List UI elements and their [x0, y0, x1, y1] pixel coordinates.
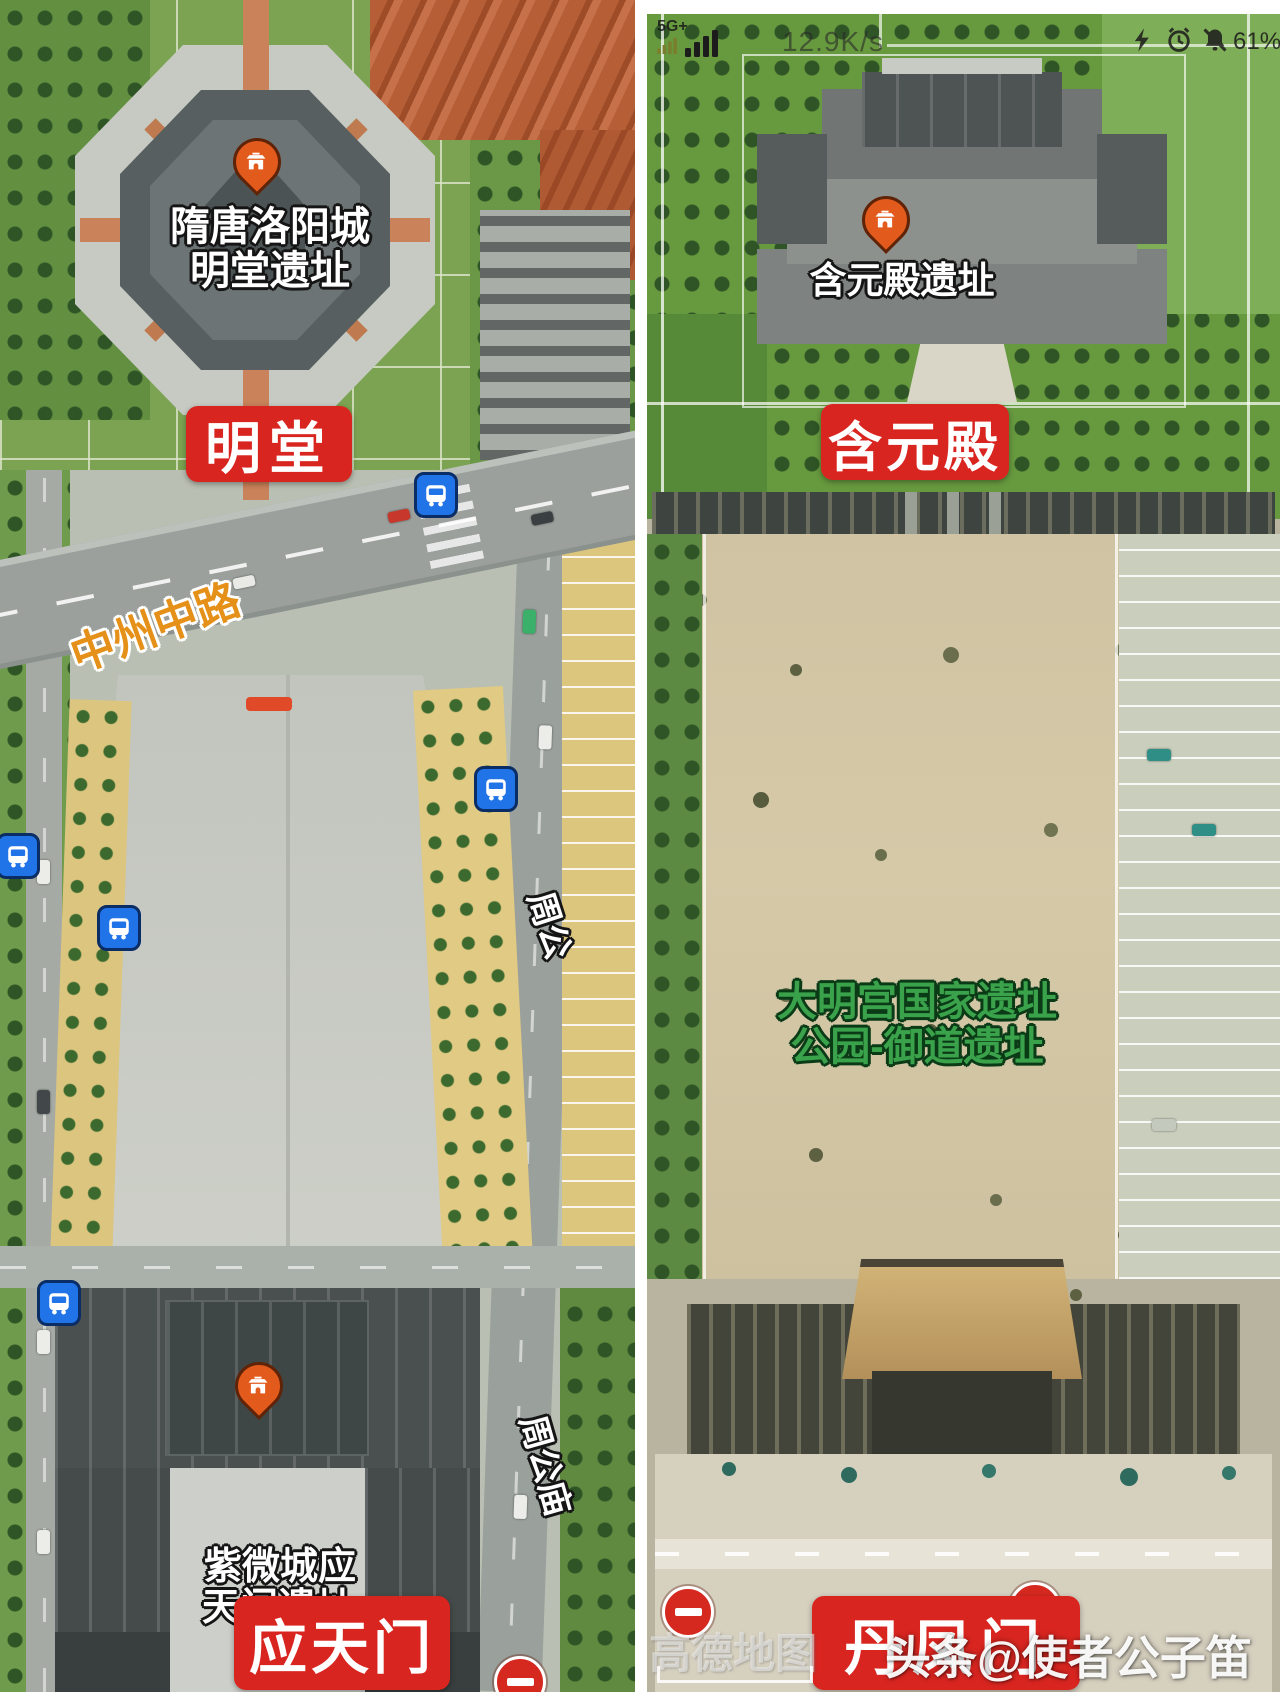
temple-gate-pin-icon [873, 210, 897, 229]
signal-bars-secondary-icon [657, 36, 679, 54]
bus-stop-icon[interactable] [414, 472, 458, 518]
alarm-clock-icon [1165, 26, 1193, 54]
damingong-park-label-line2: 公园-御道遗址 [722, 1014, 1112, 1072]
author-watermark: 头条@使者公子笛 [885, 1622, 1280, 1688]
mingtang-poi-label-line2: 明堂遗址 [95, 238, 445, 296]
car [538, 725, 552, 749]
bus-stop-icon[interactable] [37, 1280, 81, 1326]
temple-gate-pin-icon [246, 1376, 270, 1395]
palace-wall [652, 492, 1275, 534]
car [37, 1090, 50, 1114]
wall-gate-slot [947, 492, 959, 534]
plaza-edge-line [1115, 534, 1118, 1279]
park-road-line [661, 14, 664, 519]
yingtianmen-banner-text: 应天门 [249, 1601, 435, 1685]
status-bar: 5G+ 12.9K/s 61% [647, 18, 1280, 64]
plaza-edge-line [703, 534, 706, 1279]
mingtang-banner-text: 明堂 [205, 404, 333, 485]
temple-gate-pin-icon [244, 152, 268, 171]
hanyuandian-west-wing [757, 134, 827, 244]
car [522, 609, 536, 633]
car [37, 1330, 50, 1354]
hanyuandian-poi-label: 含元殿遗址 [717, 250, 1087, 304]
east-parking-strip [1119, 534, 1280, 1279]
bus-stop-icon[interactable] [0, 833, 40, 879]
red-roof-buildings [370, 0, 635, 140]
danfengmen-gatehouse [872, 1371, 1052, 1454]
map-scale-bar [657, 1666, 813, 1683]
hanyuandian-banner: 含元殿 [821, 404, 1009, 480]
bus-stop-icon[interactable] [97, 905, 141, 951]
wall-gate-slot [989, 492, 1001, 534]
lightning-icon [1129, 26, 1157, 54]
car [530, 511, 554, 526]
hanyuandian-banner-text: 含元殿 [828, 403, 1002, 482]
left-map-panel: 隋唐洛阳城 明堂遗址 明堂 中州中路 [0, 0, 635, 1692]
west-tree-column [647, 534, 702, 1279]
mingtang-banner: 明堂 [186, 406, 352, 482]
no-entry-bar [675, 1608, 702, 1616]
car [1147, 749, 1171, 761]
mingtang-poi-pin[interactable] [231, 138, 281, 200]
parking-lot [480, 210, 630, 460]
hanyuandian-poi-pin[interactable] [860, 196, 910, 258]
plaza-red-mark [246, 697, 292, 711]
yingtianmen-corner-turret [55, 1632, 170, 1692]
right-map-panel: 含元殿遗址 含元殿 大明宫国家遗址 公园-御道遗址 [647, 14, 1280, 1692]
forecourt-road-band [655, 1539, 1272, 1569]
battery-percent-label: 61% [1233, 28, 1280, 56]
bus-stop-icon[interactable] [474, 766, 518, 812]
car [514, 1495, 528, 1519]
plaza-axis-line [286, 675, 290, 1275]
network-type-label: 5G+ [657, 18, 688, 36]
car [387, 508, 411, 523]
gate-front-road [0, 1246, 635, 1288]
danfengmen-roof [842, 1259, 1082, 1379]
hanyuandian-steps [907, 344, 1017, 402]
hanyuandian-east-wing [1097, 134, 1167, 244]
network-speed-label: 12.9K/s [782, 26, 884, 58]
yingtianmen-poi-pin[interactable] [233, 1362, 283, 1424]
park-road-line [1247, 14, 1250, 519]
hanyuandian-roof [862, 72, 1062, 147]
screenshot-root: 隋唐洛阳城 明堂遗址 明堂 中州中路 [0, 0, 1280, 1706]
east-parking-strip [562, 520, 635, 1260]
wall-gate-slot [905, 492, 917, 534]
tree-scatter [722, 1462, 736, 1476]
signal-bars-icon [685, 26, 721, 58]
yingtianmen-banner: 应天门 [234, 1596, 450, 1690]
car [37, 1530, 50, 1554]
no-entry-bar [507, 1678, 534, 1686]
car [1192, 824, 1216, 836]
bell-muted-icon [1201, 26, 1229, 54]
car [1152, 1119, 1176, 1131]
